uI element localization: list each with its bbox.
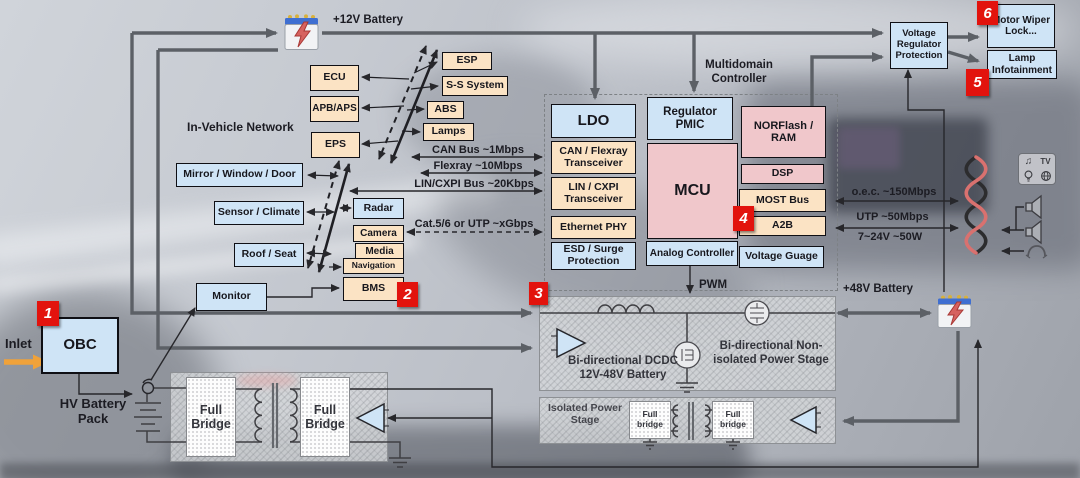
badge-5: 5 [966, 69, 989, 96]
badge-6: 6 [977, 1, 998, 25]
controller-dsp: DSP [741, 164, 824, 184]
bg-bottom-strip [0, 463, 1080, 478]
label-dcdc-title: Bi-directional DCDC [556, 355, 690, 369]
node-camera: Camera [353, 225, 404, 242]
label-oec: o.e.c. ~150Mbps [838, 186, 950, 199]
node-radar: Radar [353, 198, 404, 219]
music-note-icon: ♫ [1025, 156, 1033, 167]
full-bridge-small-2: Full bridge [712, 401, 754, 439]
automotive-architecture-diagram: ESP ECU S-S System APB/APS ABS Lamps EPS… [0, 0, 1080, 478]
node-monitor: Monitor [196, 283, 267, 311]
label-dcdc-sub: 12V-48V Battery [556, 369, 690, 383]
label-non-isolated: Bi-directional Non-isolated Power Stage [710, 340, 832, 367]
node-esp: ESP [442, 52, 492, 70]
full-bridge-small-1: Full bridge [629, 401, 671, 439]
badge-3: 3 [529, 282, 548, 305]
badge-1: 1 [37, 301, 59, 326]
bulb-icon [1023, 170, 1034, 182]
label-hv-battery-pack: HV Battery Pack [45, 396, 141, 427]
badge-2: 2 [397, 282, 418, 307]
infotainment-icons-panel: ♫ TV [1018, 153, 1056, 185]
controller-esd-surge: ESD / Surge Protection [551, 242, 636, 270]
transformer-reflection [236, 374, 298, 387]
node-navigation: Navigation [343, 258, 404, 274]
controller-regulator-pmic: Regulator PMIC [647, 97, 733, 140]
label-in-vehicle-network: In-Vehicle Network [187, 120, 294, 134]
node-lamps: Lamps [423, 123, 474, 141]
node-eps: EPS [311, 132, 360, 158]
node-abs: ABS [427, 101, 464, 119]
full-bridge-2: Full Bridge [300, 377, 350, 457]
node-ss-system: S-S System [442, 76, 508, 96]
label-can-bus: CAN Bus ~1Mbps [408, 144, 548, 157]
lamp-infotainment: Lamp Infotainment [987, 50, 1057, 79]
badge-4: 4 [733, 206, 754, 231]
controller-lin-cxpi-transceiver: LIN / CXPI Transceiver [551, 177, 636, 210]
controller-ldo: LDO [551, 104, 636, 138]
label-7-24v-50w: 7~24V ~50W [836, 231, 944, 244]
label-pwm: PWM [699, 279, 727, 291]
bg-screen-glow [838, 127, 900, 169]
voltage-regulator-protection: Voltage Regulator Protection [890, 22, 948, 69]
controller-norflash-ram: NORFlash / RAM [741, 106, 826, 158]
full-bridge-1: Full Bridge [186, 377, 236, 457]
globe-icon [1040, 170, 1052, 182]
battery-12v-icon [282, 13, 321, 51]
node-sensor-climate: Sensor / Climate [214, 201, 304, 225]
controller-mcu: MCU [647, 143, 738, 239]
node-ecu: ECU [310, 65, 359, 91]
controller-voltage-gauge: Voltage Guage [739, 246, 824, 268]
node-bms: BMS [343, 277, 404, 301]
label-inlet: Inlet [5, 336, 32, 351]
label-48v-battery: +48V Battery [843, 283, 913, 295]
label-utp: UTP ~50Mbps [840, 211, 945, 224]
controller-can-flexray-transceiver: CAN / Flexray Transceiver [551, 141, 636, 174]
label-lin-cxpi: LIN/CXPI Bus ~20Kbps [399, 178, 549, 191]
node-roof-seat: Roof / Seat [234, 243, 304, 267]
controller-ethernet-phy: Ethernet PHY [551, 216, 636, 239]
label-multidomain-controller: Multidomain Controller [684, 59, 794, 86]
label-cat56-utp: Cat.5/6 or UTP ~xGbps [399, 218, 549, 231]
node-apb-aps: APB/APS [310, 96, 359, 122]
node-mirror-window-door: Mirror / Window / Door [176, 163, 303, 187]
tv-icon: TV [1040, 157, 1050, 166]
label-flexray: Flexray ~10Mbps [408, 160, 548, 173]
controller-analog: Analog Controller [646, 241, 738, 266]
battery-48v-icon [935, 294, 974, 329]
label-12v-battery: +12V Battery [333, 14, 403, 26]
label-isolated: Isolated Power Stage [544, 402, 626, 427]
